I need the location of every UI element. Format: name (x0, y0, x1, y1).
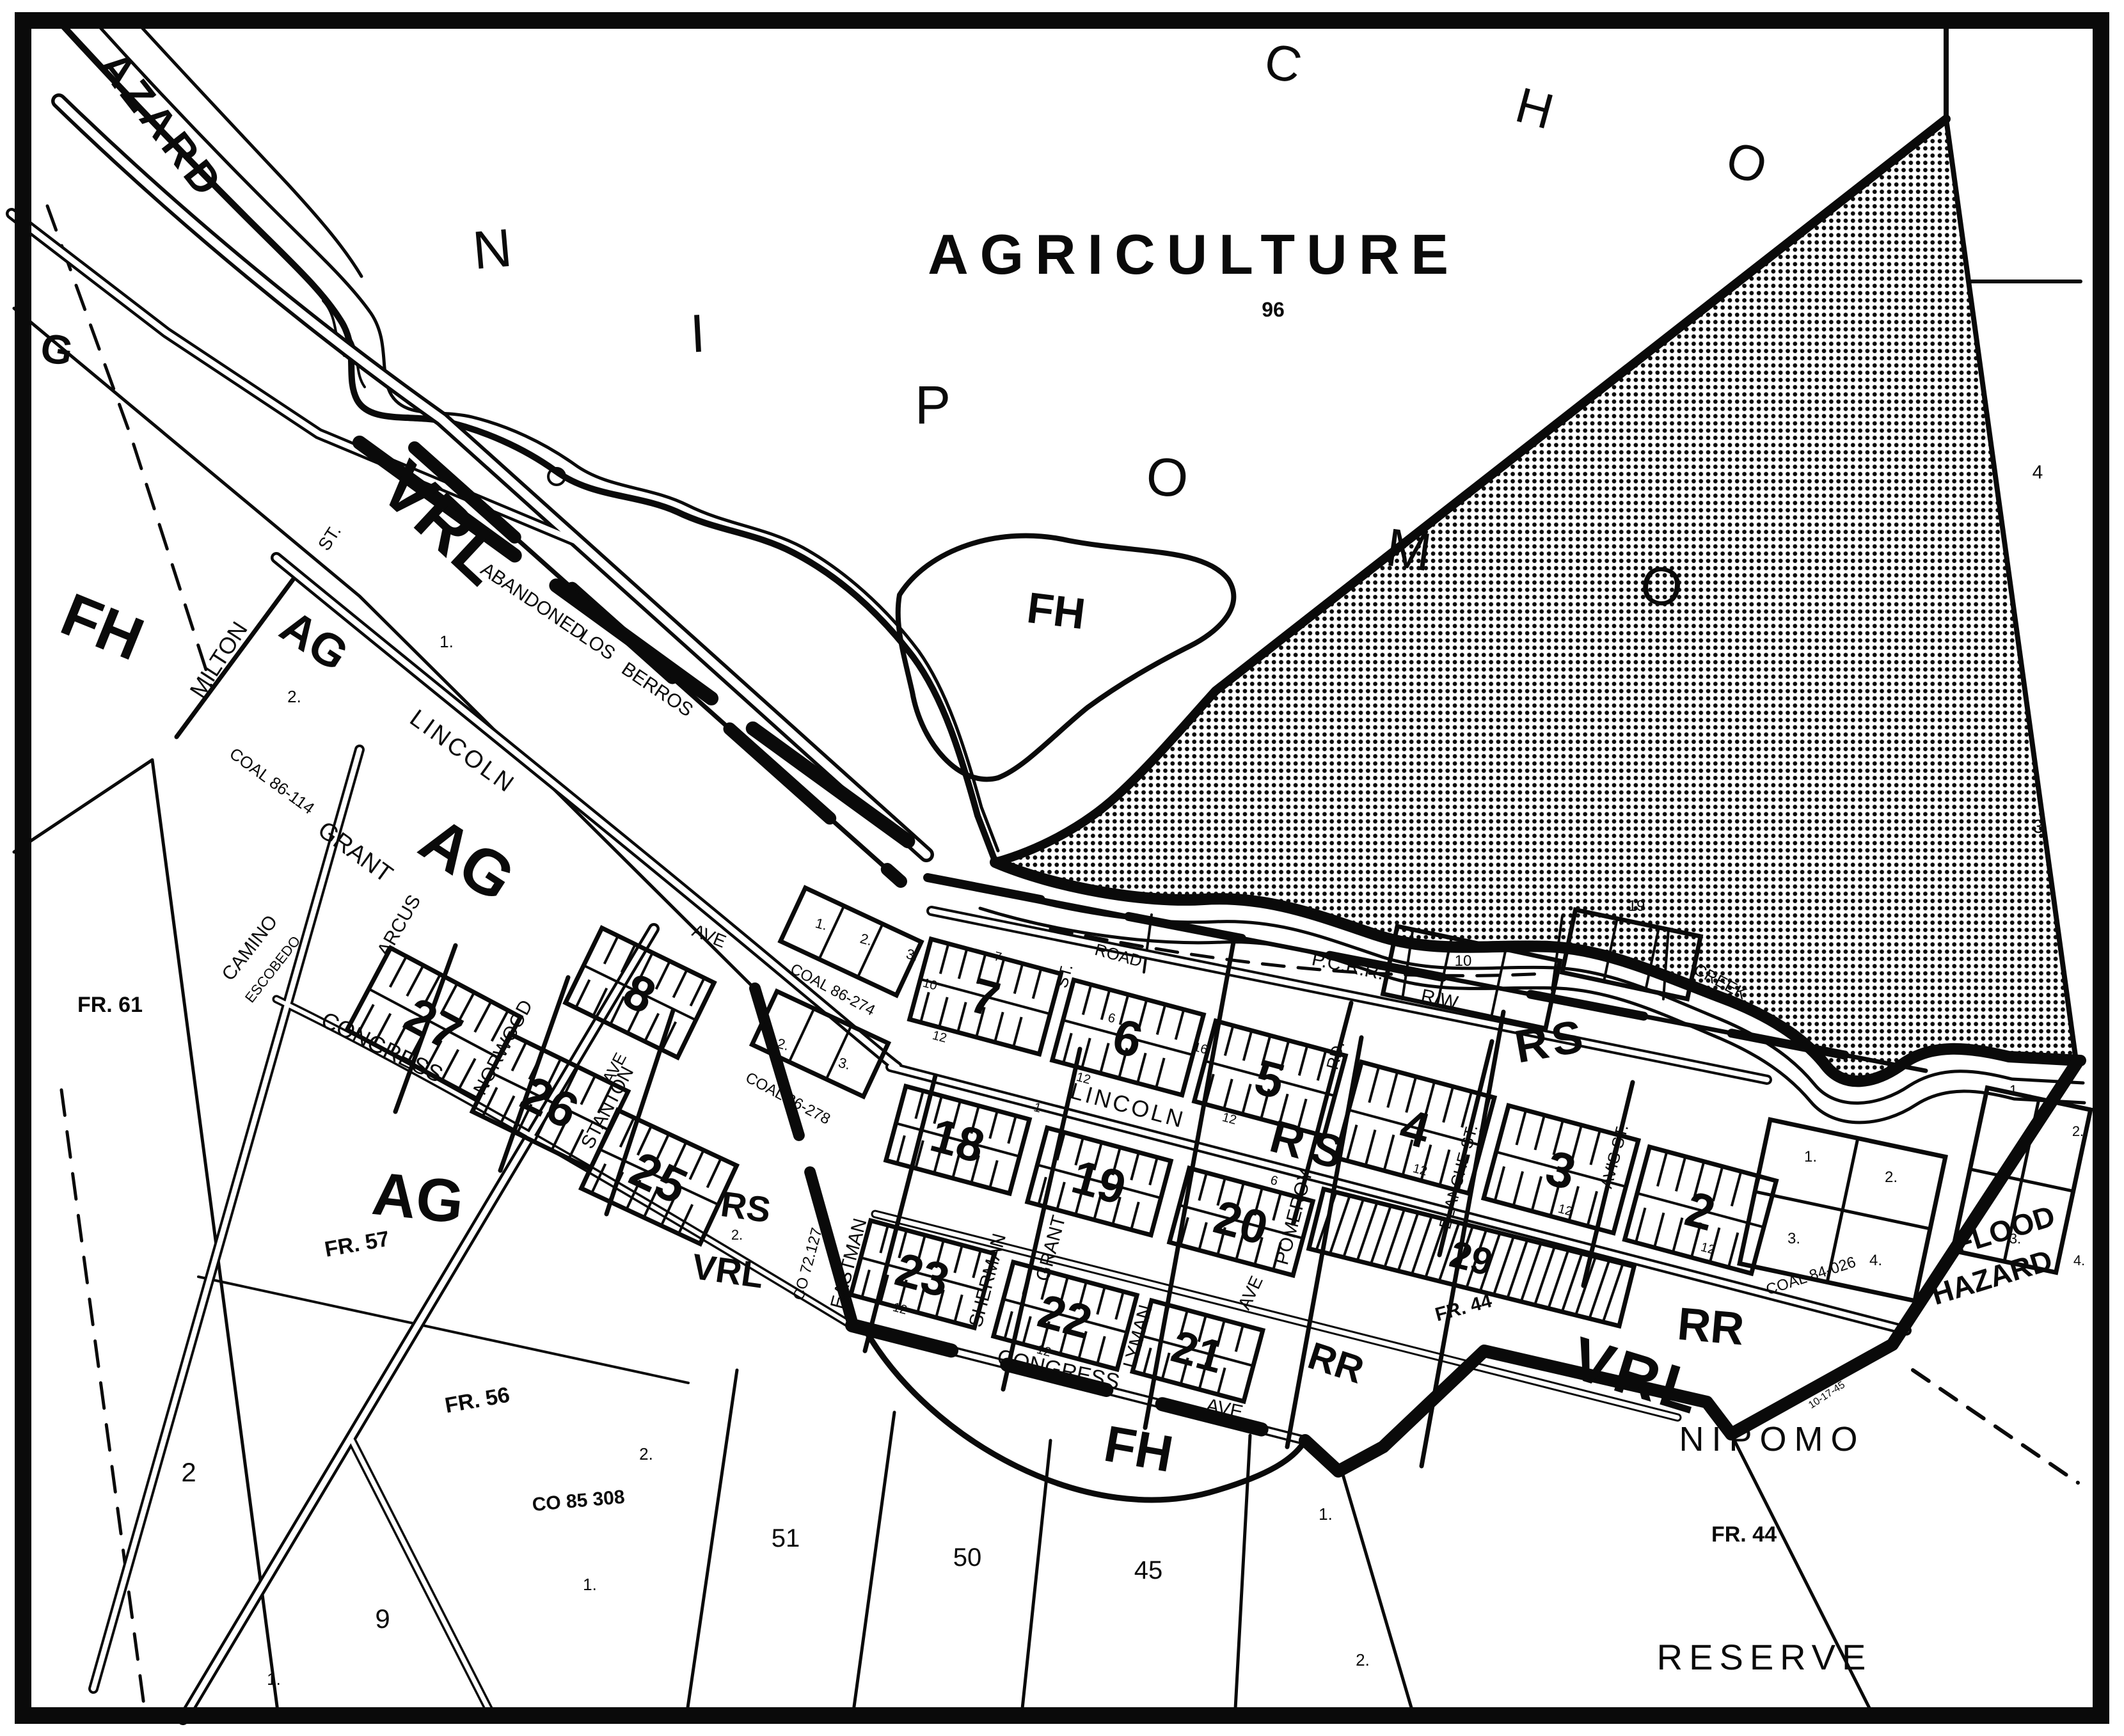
rrblk-1: 1. (1804, 1148, 1817, 1165)
parcel-num-9: 9 (375, 1604, 390, 1634)
nipomo-letter-o1: O (1144, 445, 1191, 509)
town-nipomo: NIPOMO (1679, 1420, 1865, 1458)
strip-num-19: 19 (1628, 897, 1645, 915)
zoning-map-page: 765432181920232221292726258 AGRICULTURE9… (0, 0, 2124, 1736)
zone-ag-3: AG (369, 1160, 467, 1236)
zone-agriculture-num: 96 (1262, 298, 1285, 321)
nipomo-letter-m: M (1383, 517, 1435, 583)
parcel-num-50: 50 (953, 1543, 982, 1572)
rrblk-4: 4. (1869, 1252, 1882, 1269)
swlot-1b: 1. (267, 1669, 281, 1689)
zone-rs-3: RS (718, 1183, 773, 1230)
swlot-2: 2. (639, 1444, 653, 1464)
lot-2-corridor: 2. (287, 687, 301, 706)
nipomo-letter-n: N (470, 217, 514, 281)
nipomo-letter-p: P (915, 375, 951, 435)
farblk-4: 4. (2073, 1252, 2085, 1268)
zone-fh-2: FH (1024, 583, 1088, 638)
midlot-2: 2. (731, 1227, 743, 1243)
zone-rr-1: RR (1676, 1298, 1747, 1355)
parcel-fr-44-2: FR. 44 (1711, 1522, 1777, 1547)
zoning-map: 765432181920232221292726258 AGRICULTURE9… (0, 0, 2124, 1736)
swlot-1: 1. (583, 1575, 597, 1594)
parcel-num-2: 2 (181, 1457, 196, 1487)
zone-fh-3: FH (1100, 1415, 1177, 1483)
zone-agriculture: AGRICULTURE (928, 223, 1460, 286)
lot-1-corridor: 1. (440, 632, 454, 651)
town-reserve: RESERVE (1657, 1637, 1873, 1677)
rrblk-2: 2. (1885, 1169, 1898, 1186)
farblk-2: 2. (2072, 1123, 2084, 1139)
selot-1: 1. (1319, 1504, 1333, 1524)
parcel-num-45: 45 (1134, 1556, 1163, 1584)
edge-num-4: 4 (2033, 462, 2043, 483)
parcel-fr-61: FR. 61 (77, 993, 143, 1017)
farblk-3: 3. (2009, 1231, 2021, 1247)
nipomo-letter-i: I (688, 303, 706, 363)
selot-2: 2. (1356, 1650, 1370, 1669)
rrblk-3: 3. (1787, 1230, 1800, 1247)
edge-num-3: 3 (2033, 816, 2044, 837)
strip-num-10: 10 (1455, 952, 1472, 970)
farblk-1: 1. (2009, 1082, 2021, 1098)
parcel-num-51: 51 (772, 1524, 800, 1552)
